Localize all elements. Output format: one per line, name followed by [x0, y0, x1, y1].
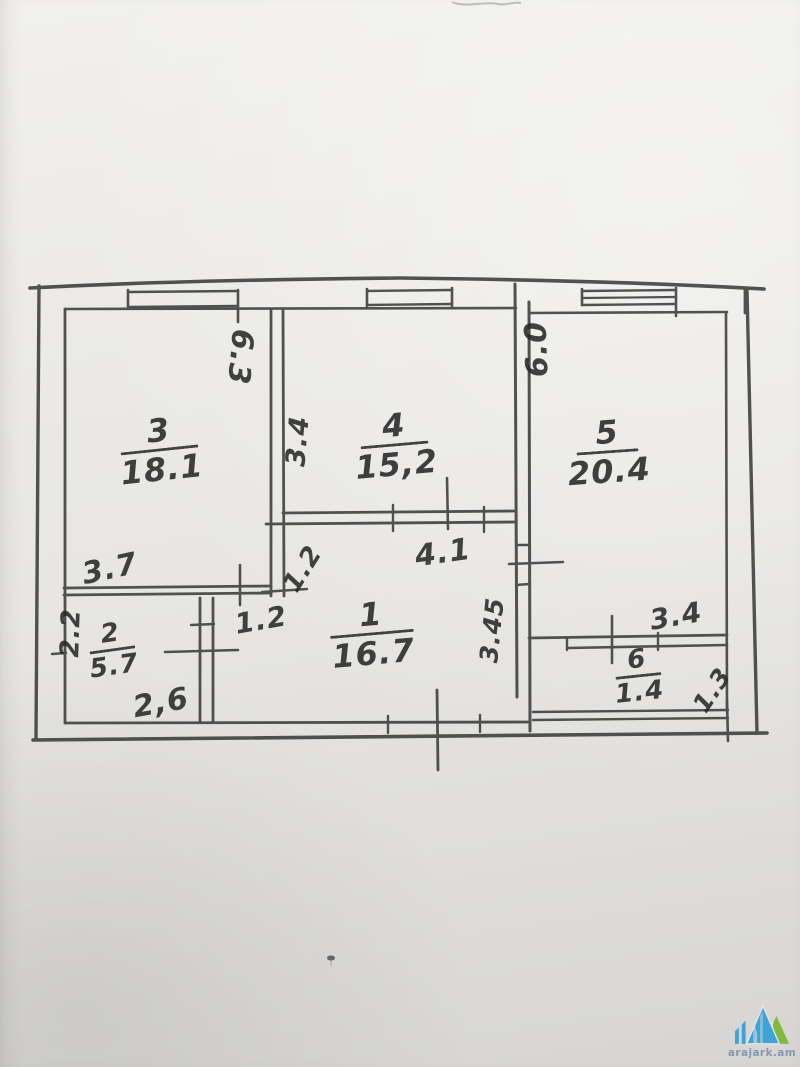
room-4-label: 4 15,2	[351, 406, 440, 484]
room-area: 18.1	[119, 449, 205, 490]
room-3-label: 3 18.1	[115, 410, 205, 490]
room-number: 5	[594, 416, 618, 450]
room-area: 5.7	[88, 650, 140, 683]
paper-top-mark	[452, 2, 521, 5]
room-number: 4	[381, 409, 406, 443]
dim-room4-left-height: 3.4	[280, 414, 315, 467]
dim-room2-height: 2.2	[55, 608, 87, 658]
paper-speck	[327, 955, 335, 966]
room-6-label: 6 1.4	[611, 644, 666, 708]
room-area: 16.7	[331, 633, 416, 673]
room-area: 15,2	[354, 444, 439, 484]
floor-plan-photo: 3 18.1 4 15,2 5 20.4 1 16.7 2 5.7 6 1.4 …	[0, 0, 800, 1067]
room-number: 2	[99, 620, 121, 649]
floor-plan-walls	[0, 0, 800, 1067]
dim-room3-height: 6.3	[220, 328, 260, 387]
room-number: 6	[626, 646, 647, 674]
room-area: 1.4	[614, 676, 666, 707]
room-number: 3	[145, 413, 171, 448]
room-1-label: 1 16.7	[327, 595, 417, 673]
arajark-logo-icon	[734, 1004, 790, 1046]
watermark-text: arajark.am	[728, 1047, 796, 1059]
room-5-label: 5 20.4	[564, 414, 652, 491]
room-2-label: 2 5.7	[84, 617, 141, 682]
watermark: arajark.am	[730, 1004, 794, 1059]
room-number: 1	[358, 598, 383, 632]
room-area: 20.4	[567, 452, 652, 490]
dim-room5-height: 6.0	[519, 320, 556, 377]
